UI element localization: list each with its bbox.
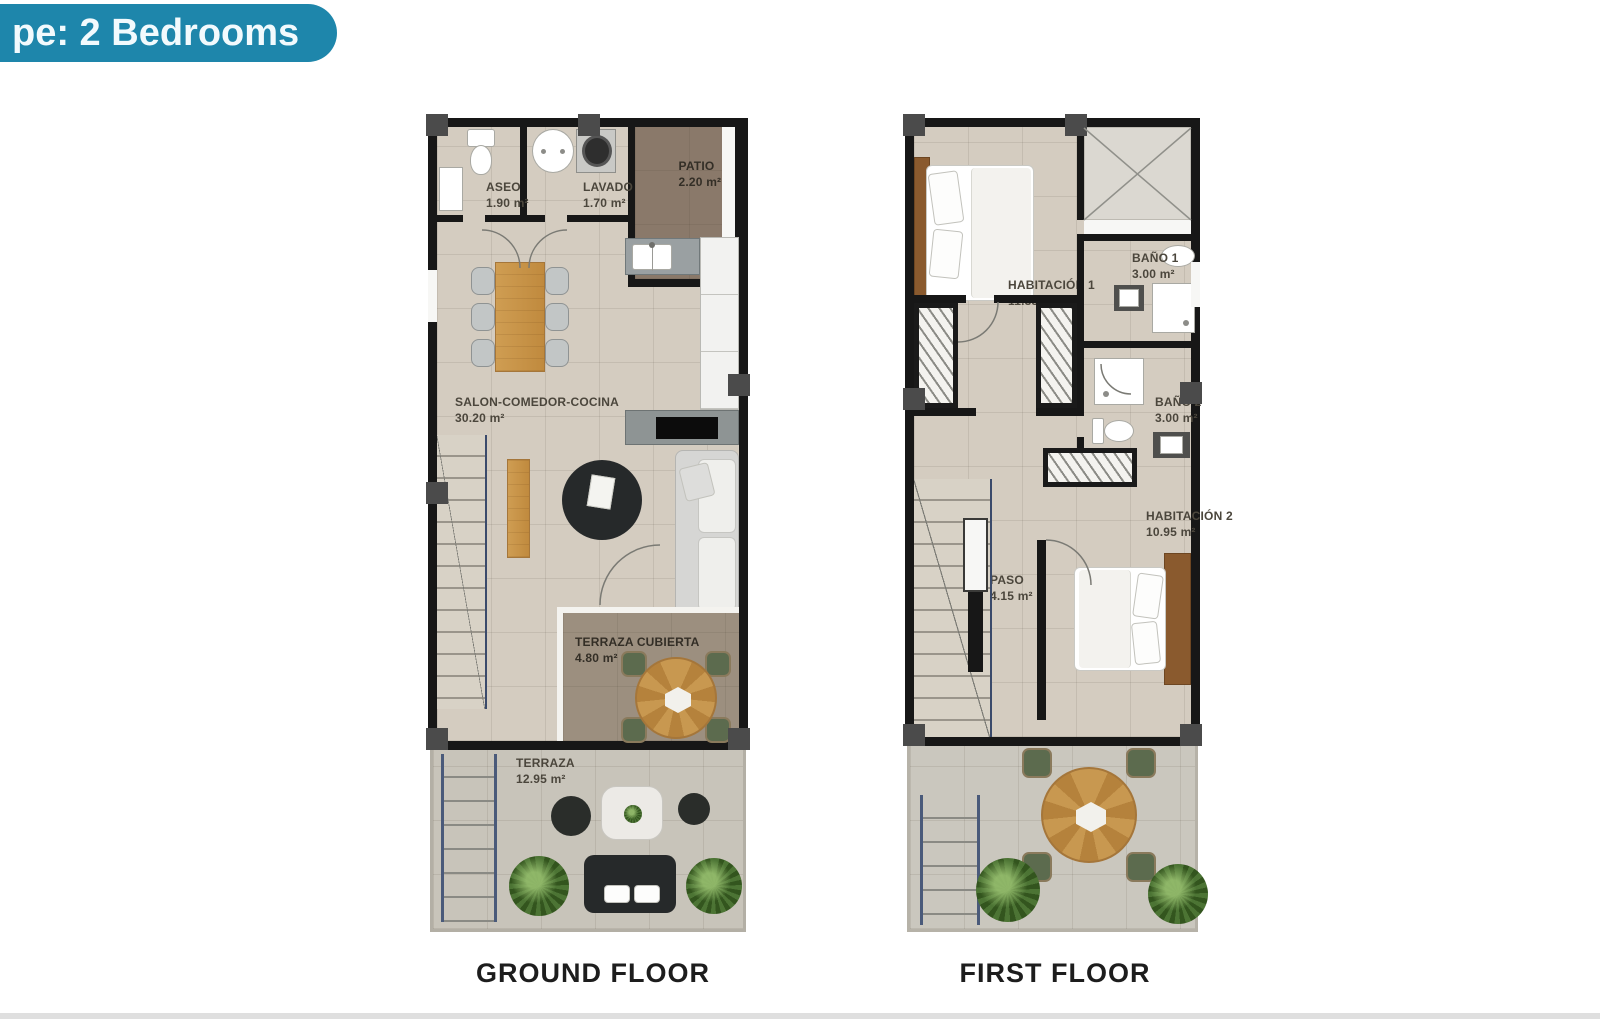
wall-pillar bbox=[728, 728, 750, 750]
dining-chair bbox=[471, 339, 495, 367]
room-area: 10.95 m² bbox=[1146, 525, 1196, 541]
table-center bbox=[1076, 802, 1106, 832]
vanity-unit bbox=[1153, 432, 1190, 458]
wall-pillar bbox=[1180, 724, 1202, 746]
room-label-habitacion1: HABITACIÓN 1 11.35 m² bbox=[962, 278, 1054, 294]
ff-wall-v2 bbox=[1077, 348, 1084, 408]
terrace-plant bbox=[976, 858, 1040, 922]
tv-screen bbox=[656, 417, 718, 439]
room-name: ASEO bbox=[486, 180, 521, 196]
toilet-bowl bbox=[1104, 420, 1134, 442]
vanity-unit bbox=[1114, 285, 1144, 311]
type-badge: pe: 2 Bedrooms bbox=[0, 4, 337, 62]
terrace-table bbox=[1041, 767, 1137, 863]
wall-pillar bbox=[426, 482, 448, 504]
bed-pillow bbox=[1132, 572, 1164, 619]
dining-table bbox=[495, 262, 545, 372]
gf-wall-hall-2 bbox=[485, 215, 545, 222]
vanity-basin bbox=[1160, 436, 1183, 454]
room-label-bano1: BAÑO 1 3.00 m² bbox=[1092, 251, 1172, 267]
wall-pillar bbox=[1180, 382, 1202, 404]
coffee-table bbox=[562, 460, 642, 540]
terrace-table bbox=[635, 657, 717, 739]
ff-wall-void-left bbox=[1077, 127, 1084, 220]
room-area: 4.80 m² bbox=[575, 651, 618, 667]
washer-drum bbox=[582, 135, 612, 167]
bed-headboard bbox=[1164, 553, 1191, 685]
wall-pillar bbox=[903, 724, 925, 746]
shower-drain bbox=[1183, 320, 1189, 326]
room-area: 3.00 m² bbox=[1132, 267, 1175, 283]
stair-railing bbox=[441, 754, 497, 922]
room-area: 1.70 m² bbox=[583, 196, 626, 212]
terrace-plant bbox=[1148, 864, 1208, 924]
room-name: SALON-COMEDOR-COCINA bbox=[455, 395, 619, 411]
terrace-plant bbox=[509, 856, 569, 916]
wall-pillar bbox=[1065, 114, 1087, 136]
room-area: 30.20 m² bbox=[455, 411, 505, 427]
bed-pillow bbox=[928, 170, 965, 226]
pouffe bbox=[678, 793, 710, 825]
gf-building: PATIO 2.20 m² ASEO 1.90 m² LAVADO 1.70 m… bbox=[428, 118, 748, 750]
dining-chair bbox=[471, 303, 495, 331]
covered-terrace-floor: TERRAZA CUBIERTA 4.80 m² bbox=[557, 607, 739, 741]
room-name: PATIO bbox=[679, 159, 715, 175]
stair-railing bbox=[920, 795, 980, 925]
wardrobe bbox=[1043, 448, 1137, 487]
gf-wall-hall-3 bbox=[567, 215, 628, 222]
bed bbox=[1074, 567, 1166, 671]
wall-pillar bbox=[578, 114, 600, 136]
bed-pillow bbox=[1131, 621, 1161, 665]
ff-wall-below-void bbox=[1077, 234, 1191, 241]
faucet-dot bbox=[541, 149, 546, 154]
room-name: HABITACIÓN 2 bbox=[1146, 509, 1233, 525]
sink-divider bbox=[652, 245, 653, 271]
ff-wall-v1 bbox=[1077, 241, 1084, 341]
room-name: TERRAZA bbox=[516, 756, 575, 772]
ff-building: HABITACIÓN 1 11.35 m² BAÑO 1 3.00 m² bbox=[905, 118, 1200, 746]
pouffe bbox=[551, 796, 591, 836]
room-label-lavado: LAVADO 1.70 m² bbox=[545, 180, 621, 196]
table-center bbox=[665, 687, 691, 713]
ff-landing-strip bbox=[1084, 220, 1191, 234]
room-area: 1.90 m² bbox=[486, 196, 529, 212]
room-name: TERRAZA CUBIERTA bbox=[575, 635, 700, 651]
wall-pillar bbox=[426, 728, 448, 750]
room-name: PASO bbox=[990, 573, 1024, 589]
sofa bbox=[675, 450, 739, 620]
bed-pillow bbox=[929, 229, 964, 280]
faucet-dot bbox=[649, 242, 655, 248]
first-floor-caption: FIRST FLOOR bbox=[905, 958, 1205, 989]
room-area: 2.20 m² bbox=[679, 175, 722, 191]
drain-dot bbox=[560, 149, 565, 154]
outdoor-sofa bbox=[584, 855, 676, 913]
room-name: LAVADO bbox=[583, 180, 633, 196]
room-label-terraza-cubierta: TERRAZA CUBIERTA 4.80 m² bbox=[575, 635, 735, 651]
kitchen-counter bbox=[625, 238, 700, 275]
terrace-chair bbox=[1126, 748, 1156, 778]
wall-pillar bbox=[903, 114, 925, 136]
toilet bbox=[1092, 418, 1104, 444]
ff-wall-h1 bbox=[1077, 341, 1191, 348]
shower-drain bbox=[1103, 391, 1109, 397]
room-label-salon: SALON-COMEDOR-COCINA 30.20 m² bbox=[455, 395, 625, 411]
tv-bench bbox=[625, 410, 739, 445]
room-label-paso: PASO 4.15 m² bbox=[990, 573, 1060, 589]
dining-chair bbox=[545, 303, 569, 331]
wall-pillar bbox=[426, 114, 448, 136]
wardrobe bbox=[1036, 303, 1077, 408]
room-area: 12.95 m² bbox=[516, 772, 566, 788]
dining-chair bbox=[545, 339, 569, 367]
table-plant bbox=[624, 805, 642, 823]
ground-floor-caption: GROUND FLOOR bbox=[428, 958, 758, 989]
ff-wall-paso bbox=[1037, 540, 1046, 720]
duvet bbox=[1079, 570, 1131, 668]
toilet-bowl bbox=[470, 145, 492, 175]
wall-pillar bbox=[903, 388, 925, 410]
page-bottom-strip bbox=[0, 1013, 1600, 1019]
dining-chair bbox=[471, 267, 495, 295]
magazine bbox=[587, 474, 616, 509]
terrace-plant bbox=[686, 858, 742, 914]
room-label-aseo: ASEO 1.90 m² bbox=[451, 180, 521, 196]
lavado-sink bbox=[532, 129, 574, 173]
gf-wall-hall-1 bbox=[437, 215, 463, 222]
stair-landing bbox=[963, 518, 988, 592]
room-label-habitacion2: HABITACIÓN 2 10.95 m² bbox=[1100, 509, 1192, 525]
sofa-cushion bbox=[604, 885, 630, 903]
kitchen-sink bbox=[632, 244, 672, 270]
void-area bbox=[1084, 127, 1191, 220]
room-label-patio: PATIO 2.20 m² bbox=[635, 159, 722, 175]
sideboard bbox=[507, 459, 530, 558]
ff-wall-h3b bbox=[1036, 408, 1084, 416]
window-opening bbox=[428, 270, 437, 322]
terrace-chair bbox=[1022, 748, 1052, 778]
sofa-cushion bbox=[634, 885, 660, 903]
ff-wall-h2b bbox=[994, 295, 1077, 303]
ground-floor-plan: PATIO 2.20 m² ASEO 1.90 m² LAVADO 1.70 m… bbox=[428, 112, 758, 934]
wall-pillar bbox=[728, 374, 750, 396]
ff-wall-stair bbox=[968, 592, 983, 672]
ff-wall-h2a bbox=[914, 295, 966, 303]
terrace-floor: TERRAZA 12.95 m² bbox=[430, 750, 746, 932]
dining-chair bbox=[545, 267, 569, 295]
room-name: BAÑO 1 bbox=[1132, 251, 1179, 267]
terrace-floor bbox=[907, 746, 1198, 932]
window-opening bbox=[1191, 262, 1200, 307]
first-floor-plan: HABITACIÓN 1 11.35 m² BAÑO 1 3.00 m² bbox=[905, 112, 1205, 934]
room-area: 4.15 m² bbox=[990, 589, 1033, 605]
outdoor-coffee-table bbox=[601, 786, 663, 840]
staircase bbox=[437, 435, 487, 709]
seat-cushion bbox=[698, 537, 736, 611]
vanity-basin bbox=[1119, 289, 1139, 307]
shower-tray bbox=[1152, 283, 1195, 333]
room-area: 3.00 m² bbox=[1155, 411, 1198, 427]
